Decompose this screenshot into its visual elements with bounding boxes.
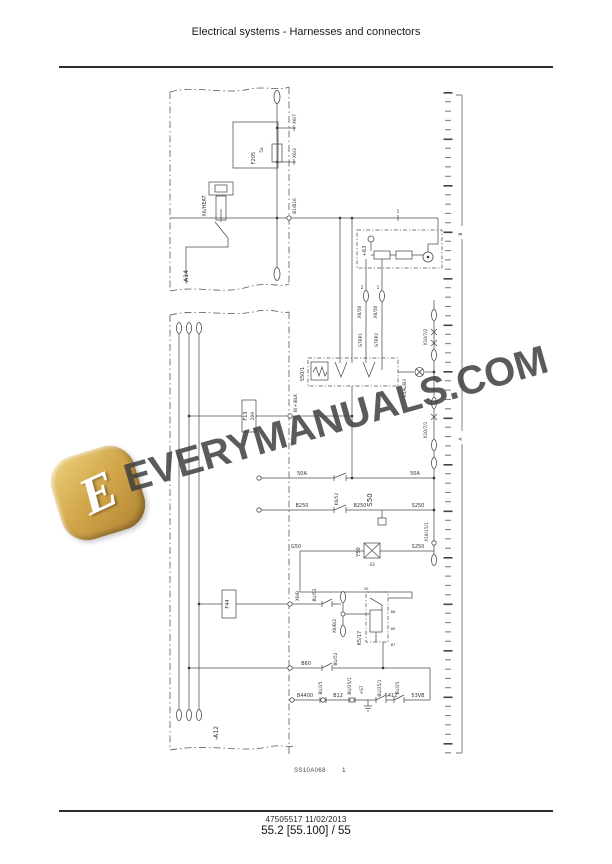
relay-x6-heat: X6/HEAT	[202, 182, 233, 220]
label-pin1-wire: 1	[397, 209, 400, 215]
bus-right-connector	[432, 458, 437, 469]
label-x0-b: X0/B	[295, 591, 301, 601]
label-f13: F13	[243, 411, 249, 420]
label-bu25-1-a: BU/25/1	[347, 677, 353, 694]
label-b60: B60	[301, 661, 311, 667]
a12-bottom-connector-3	[196, 710, 201, 721]
harness-a14-border	[170, 87, 289, 291]
bu25-1-connector	[350, 698, 354, 702]
label-g50: G50	[291, 544, 301, 550]
f44-border-connector	[288, 602, 292, 606]
watermark-logo-letter: E	[70, 459, 126, 527]
label-f205-rating: 5a	[259, 147, 265, 153]
label-b250-left: B250	[296, 503, 309, 509]
block-plus63: +63	[357, 230, 442, 290]
a12-top-connector-3	[196, 323, 201, 334]
x10-7-1-connector-b	[432, 440, 437, 451]
bus-50a	[257, 473, 434, 481]
label-gtrp1: GTRP1	[358, 333, 364, 347]
bus2-left-connector	[257, 508, 261, 512]
label-plus63: +63	[362, 246, 368, 257]
label-50a-right: 50A	[410, 471, 420, 477]
bus-b250	[257, 505, 434, 525]
x6-50-connector-b	[380, 291, 385, 302]
label-pin2: 2	[361, 285, 364, 291]
label-y50: Y50	[356, 547, 362, 557]
a12-top-connector-1	[176, 323, 181, 334]
a14-bottom-connector	[274, 268, 280, 281]
label-s250-bus2: S250	[412, 503, 425, 509]
label-harness-a14: -A14	[183, 270, 190, 284]
label-pin43: 43	[369, 562, 375, 568]
bu25-connector	[321, 698, 325, 702]
x0-b-2-junction	[341, 612, 345, 616]
fuse-f205: F205 5a	[233, 122, 282, 168]
label-b1-b16: B1/B16	[292, 198, 298, 214]
a14-border-connector	[287, 216, 291, 220]
label-k6-52: K6/52	[334, 493, 340, 506]
label-x6-7: X6/7	[292, 114, 298, 124]
label-x6-50-b: X6/50	[373, 305, 379, 318]
label-gtrp2: GTRP2	[374, 333, 380, 347]
section-bracket: B A	[456, 95, 466, 753]
label-x6-heat: X6/HEAT	[202, 194, 208, 216]
label-bu25-1-b: BU/25/1	[377, 679, 383, 696]
label-bu25-b: BU/25	[395, 681, 401, 694]
bracket-label-a: A	[458, 437, 464, 440]
label-bu25-a: BU/25	[318, 681, 324, 694]
label-harness-a12: -A12	[213, 726, 220, 740]
label-x18-15-1: X18/15/1	[424, 522, 430, 542]
bracket-label-b: B	[458, 232, 464, 235]
label-x6-50-a: X6/50	[357, 305, 363, 318]
label-x6-2: X6/2	[292, 148, 298, 158]
a14-wires	[170, 103, 438, 283]
label-f44: F44	[225, 599, 231, 608]
label-bu52-top: BU/52	[312, 588, 318, 601]
right-connector-chain	[431, 300, 437, 555]
label-x0-b-2: X0/B/2	[332, 619, 338, 634]
label-bu52-bottom: BU/52	[333, 652, 339, 665]
label-53vb: 53VB	[411, 693, 425, 699]
label-pin86: 86	[391, 609, 396, 614]
label-x10-7-2: X10/7/2	[423, 328, 429, 345]
label-50a-left: 50A	[297, 471, 307, 477]
a12-top-connector-2	[186, 323, 191, 334]
x0-b-2-connector-bottom	[341, 626, 346, 637]
label-b12: B12	[333, 693, 343, 699]
x10-7-2-connector-b	[432, 350, 437, 361]
label-k5-17: K5/17	[357, 631, 363, 646]
bottom-bus-border-connector	[290, 698, 294, 702]
valve-y50: Y50 43	[356, 543, 380, 568]
b60-border-connector	[288, 666, 292, 670]
label-pin87: 87	[391, 642, 396, 647]
x0-b-2-connector-top	[341, 592, 346, 603]
bus1-left-connector	[257, 476, 261, 480]
bus3-right-connector	[432, 555, 437, 566]
a14-top-connector	[274, 91, 280, 104]
manual-page: Electrical systems - Harnesses and conne…	[0, 0, 612, 864]
label-s50: S50	[366, 493, 374, 506]
label-s250-bus3: S250	[412, 544, 425, 550]
x18-15-1-connector	[432, 541, 436, 545]
fuse-f44: F44	[222, 590, 236, 618]
label-plus-s7: +S7	[359, 685, 365, 694]
label-b4400: B4400	[297, 693, 313, 699]
label-pin30: 30	[364, 586, 369, 591]
a12-feed-wires	[179, 333, 199, 710]
label-f205: F205	[251, 152, 257, 164]
label-b250-right: B250	[354, 503, 367, 509]
label-pin85: 85	[391, 626, 396, 631]
a12-bottom-connector-2	[186, 710, 191, 721]
x6-50-connector-a	[364, 291, 369, 302]
a12-bottom-connector-1	[176, 710, 181, 721]
label-s50-1: S50/1	[300, 367, 306, 381]
f44-line	[199, 599, 341, 607]
x10-7-2-connector	[432, 310, 437, 321]
label-pin1: 1	[377, 285, 380, 291]
